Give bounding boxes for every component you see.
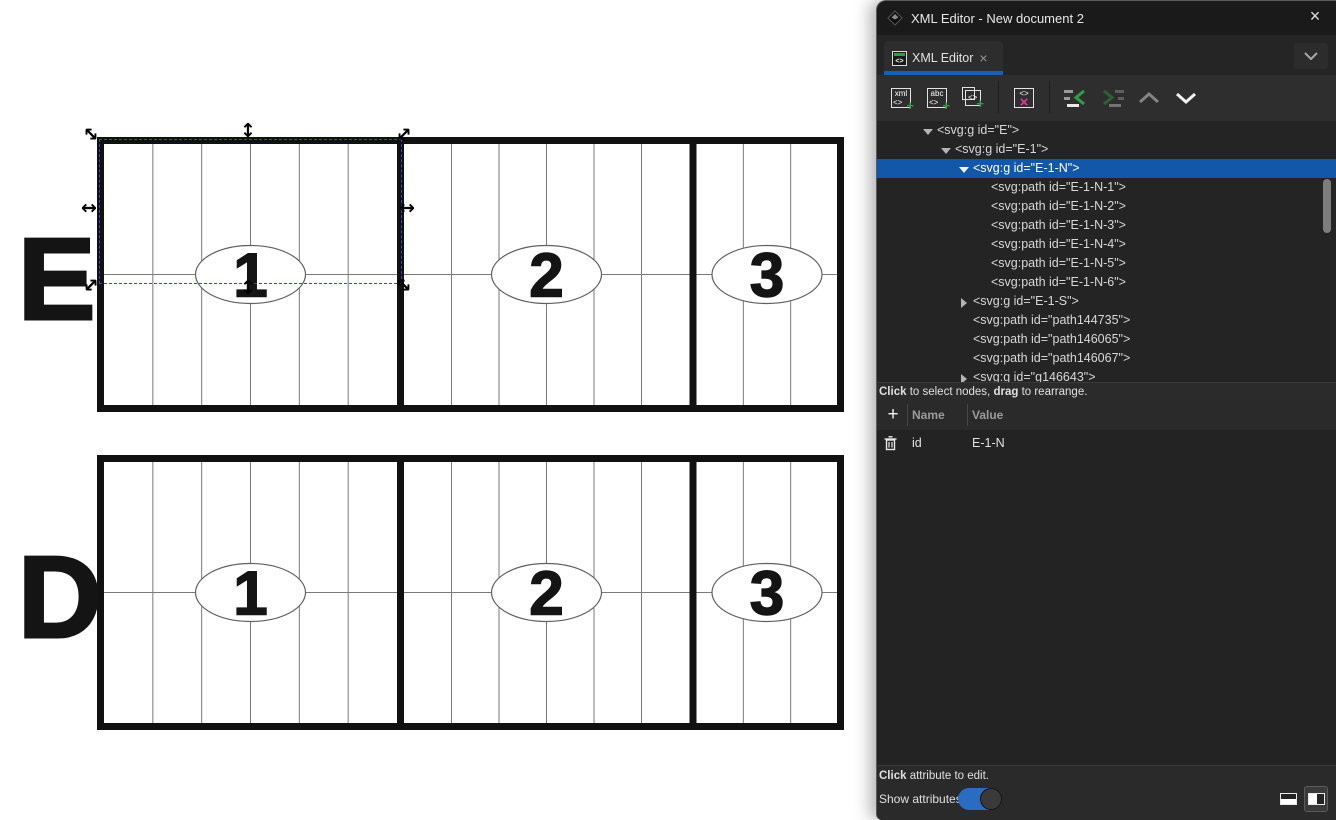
chevron-down-icon bbox=[1304, 52, 1318, 60]
column-separator bbox=[967, 404, 968, 426]
tab-label: XML Editor bbox=[912, 51, 973, 65]
node-label: <svg:path id="E-1-N-5"> bbox=[989, 254, 1126, 273]
panel-footer: Click attribute to edit. Show attributes bbox=[877, 765, 1336, 820]
node-label: <svg:path id="E-1-N-1"> bbox=[989, 178, 1126, 197]
xml-editor-dialog: XML Editor - New document 2 × <> XML Edi… bbox=[876, 0, 1336, 820]
horizontal-split-icon bbox=[1280, 793, 1297, 805]
svg-document[interactable]: 123E123D bbox=[0, 0, 876, 820]
xml-editor-tab-icon: <> bbox=[892, 51, 907, 66]
section-number: 1 bbox=[233, 560, 267, 629]
tree-hint-text: Click to select nodes, drag to rearrange… bbox=[877, 382, 1336, 400]
xml-node-tree[interactable]: <svg:g id="E"><svg:g id="E-1"><svg:g id=… bbox=[877, 121, 1336, 382]
unindent-icon bbox=[1064, 89, 1088, 107]
grid-e[interactable]: 123E bbox=[18, 137, 841, 412]
section-number: 3 bbox=[750, 560, 784, 629]
tree-node[interactable]: <svg:path id="path146065"> bbox=[877, 330, 1336, 349]
column-header-name: Name bbox=[912, 400, 945, 430]
column-header-value: Value bbox=[972, 400, 1003, 430]
section-number: 2 bbox=[529, 242, 563, 311]
move-node-down-button[interactable] bbox=[1169, 81, 1203, 115]
tree-node[interactable]: <svg:path id="E-1-N-2"> bbox=[877, 197, 1336, 216]
indent-icon bbox=[1100, 89, 1124, 107]
duplicate-node-button[interactable]: <>+ bbox=[956, 81, 990, 115]
attributes-header: + Name Value bbox=[877, 400, 1336, 431]
attributes-table: idE-1-N bbox=[877, 430, 1336, 765]
node-label: <svg:g id="E-1"> bbox=[953, 140, 1048, 159]
toolbar-separator bbox=[998, 81, 999, 113]
expander-spacer bbox=[975, 200, 989, 214]
expander-closed-icon[interactable] bbox=[957, 371, 971, 383]
vertical-split-icon bbox=[1308, 793, 1325, 805]
expander-spacer bbox=[975, 238, 989, 252]
tree-node[interactable]: <svg:path id="E-1-N-4"> bbox=[877, 235, 1336, 254]
node-label: <svg:g id="E-1-N"> bbox=[971, 159, 1080, 178]
tree-node[interactable]: <svg:path id="path146067"> bbox=[877, 349, 1336, 368]
expander-spacer bbox=[957, 333, 971, 347]
tree-node[interactable]: <svg:path id="path144735"> bbox=[877, 311, 1336, 330]
expander-spacer bbox=[975, 181, 989, 195]
node-label: <svg:path id="E-1-N-3"> bbox=[989, 216, 1126, 235]
show-attributes-label: Show attributes bbox=[879, 792, 962, 806]
close-icon[interactable]: × bbox=[1304, 6, 1326, 28]
expander-spacer bbox=[975, 219, 989, 233]
inkscape-icon bbox=[887, 10, 903, 26]
add-attribute-button[interactable]: + bbox=[881, 403, 905, 427]
scale-handle-bottom[interactable]: ↔ bbox=[238, 277, 258, 297]
attribute-name[interactable]: id bbox=[912, 436, 922, 450]
xml-toolbar: xml<>+ abc<>+ <>+ <>× bbox=[877, 75, 1336, 122]
section-number: 2 bbox=[529, 560, 563, 629]
scale-handle-right[interactable]: ↔ bbox=[397, 198, 417, 218]
tree-node[interactable]: <svg:g id="E-1-N"> bbox=[877, 159, 1336, 178]
node-label: <svg:g id="E"> bbox=[935, 121, 1019, 140]
section-number: 3 bbox=[750, 242, 784, 311]
expander-open-icon[interactable] bbox=[921, 124, 935, 138]
delete-node-button[interactable]: <>× bbox=[1007, 81, 1041, 115]
tree-node[interactable]: <svg:g id="E-1"> bbox=[877, 140, 1336, 159]
scale-handle-left[interactable]: ↔ bbox=[79, 198, 99, 218]
node-label: <svg:path id="path146067"> bbox=[971, 349, 1130, 368]
tab-xml-editor[interactable]: <> XML Editor × bbox=[884, 41, 1003, 75]
node-label: <svg:path id="E-1-N-2"> bbox=[989, 197, 1126, 216]
toggle-knob bbox=[980, 788, 1002, 810]
dialog-title: XML Editor - New document 2 bbox=[911, 11, 1084, 26]
expander-open-icon[interactable] bbox=[939, 143, 953, 157]
delete-attribute-icon[interactable] bbox=[884, 436, 898, 451]
tree-scrollbar-thumb[interactable] bbox=[1323, 179, 1331, 233]
chevron-down-icon bbox=[1175, 92, 1197, 104]
layout-horizontal-button[interactable] bbox=[1276, 786, 1300, 812]
node-label: <svg:path id="E-1-N-6"> bbox=[989, 273, 1126, 292]
grid-d[interactable]: 123D bbox=[18, 455, 841, 730]
panel-menu-button[interactable] bbox=[1294, 43, 1328, 69]
expander-spacer bbox=[957, 352, 971, 366]
row-label-d: D bbox=[18, 532, 102, 662]
expander-open-icon[interactable] bbox=[957, 162, 971, 176]
tree-node[interactable]: <svg:g id="E"> bbox=[877, 121, 1336, 140]
tree-node[interactable]: <svg:path id="E-1-N-1"> bbox=[877, 178, 1336, 197]
expander-spacer bbox=[957, 314, 971, 328]
tree-node[interactable]: <svg:g id="E-1-S"> bbox=[877, 292, 1336, 311]
drawing-canvas[interactable]: 123E123D ↔ ↔ ↔ ↔ ↔ ↔ ↔ ↔ bbox=[0, 0, 876, 820]
chevron-up-icon bbox=[1138, 92, 1160, 104]
tree-node[interactable]: <svg:path id="E-1-N-6"> bbox=[877, 273, 1336, 292]
inkscape-window: 123E123D ↔ ↔ ↔ ↔ ↔ ↔ ↔ ↔ XML Editor - Ne… bbox=[0, 0, 1336, 820]
tree-node[interactable]: <svg:g id="g146643"> bbox=[877, 368, 1336, 382]
new-element-node-button[interactable]: xml<>+ bbox=[884, 81, 918, 115]
node-label: <svg:g id="g146643"> bbox=[971, 368, 1096, 382]
panel-tab-strip: <> XML Editor × bbox=[877, 35, 1336, 75]
expander-closed-icon[interactable] bbox=[957, 295, 971, 309]
scale-handle-top[interactable]: ↔ bbox=[238, 120, 258, 140]
indent-node-button[interactable] bbox=[1095, 81, 1129, 115]
tree-node[interactable]: <svg:path id="E-1-N-5"> bbox=[877, 254, 1336, 273]
attribute-row[interactable]: idE-1-N bbox=[877, 430, 1336, 456]
new-text-node-button[interactable]: abc<>+ bbox=[920, 81, 954, 115]
move-node-up-button[interactable] bbox=[1132, 81, 1166, 115]
tree-node[interactable]: <svg:path id="E-1-N-3"> bbox=[877, 216, 1336, 235]
node-label: <svg:path id="path146065"> bbox=[971, 330, 1130, 349]
node-label: <svg:g id="E-1-S"> bbox=[971, 292, 1079, 311]
dialog-title-bar[interactable]: XML Editor - New document 2 × bbox=[877, 1, 1336, 35]
section-number: 1 bbox=[233, 242, 267, 311]
show-attributes-toggle[interactable] bbox=[958, 788, 1002, 810]
toolbar-separator bbox=[1049, 81, 1050, 113]
node-label: <svg:path id="E-1-N-4"> bbox=[989, 235, 1126, 254]
expander-spacer bbox=[975, 257, 989, 271]
column-separator bbox=[907, 404, 908, 426]
expander-spacer bbox=[975, 276, 989, 290]
layout-vertical-button[interactable] bbox=[1304, 786, 1328, 812]
attribute-edit-hint: Click attribute to edit. bbox=[879, 770, 989, 782]
attribute-value[interactable]: E-1-N bbox=[972, 436, 1005, 450]
unindent-node-button[interactable] bbox=[1059, 81, 1093, 115]
node-label: <svg:path id="path144735"> bbox=[971, 311, 1130, 330]
tab-close-icon[interactable]: × bbox=[979, 51, 987, 65]
